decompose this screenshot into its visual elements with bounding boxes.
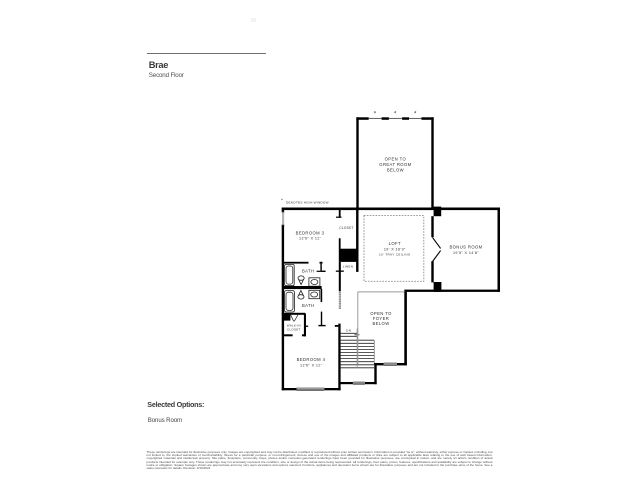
svg-text:BELOW: BELOW [387,167,404,172]
svg-text:BONUS ROOM: BONUS ROOM [449,245,482,250]
svg-text:BELOW: BELOW [372,321,389,326]
svg-text:*: * [374,112,377,118]
svg-text:DENOTES HIGH WINDOW: DENOTES HIGH WINDOW [286,200,329,204]
svg-text:*: * [281,198,283,203]
svg-text:GREAT ROOM: GREAT ROOM [379,162,411,167]
svg-text:19' X 16'9": 19' X 16'9" [384,248,406,252]
svg-text:BEDROOM 3: BEDROOM 3 [296,230,325,235]
svg-text:BATH: BATH [302,269,314,274]
svg-text:CLOSET: CLOSET [339,226,354,230]
svg-text:BEDROOM 4: BEDROOM 4 [297,357,326,362]
svg-text:OPEN TO: OPEN TO [385,156,407,161]
svg-text:LOFT: LOFT [389,241,401,246]
svg-text:*: * [394,112,397,118]
svg-text:*: * [414,112,417,118]
svg-text:12'6" X 12': 12'6" X 12' [299,237,321,241]
svg-text:10' TRAY CEILING: 10' TRAY CEILING [379,253,411,257]
svg-text:LINEN: LINEN [343,265,353,269]
svg-text:CLOSET: CLOSET [287,328,301,332]
svg-text:BATH: BATH [302,303,314,308]
svg-text:19'5" X 14'8": 19'5" X 14'8" [453,251,479,255]
svg-text:DN: DN [346,328,351,332]
svg-text:12'6" X 12': 12'6" X 12' [300,364,322,368]
